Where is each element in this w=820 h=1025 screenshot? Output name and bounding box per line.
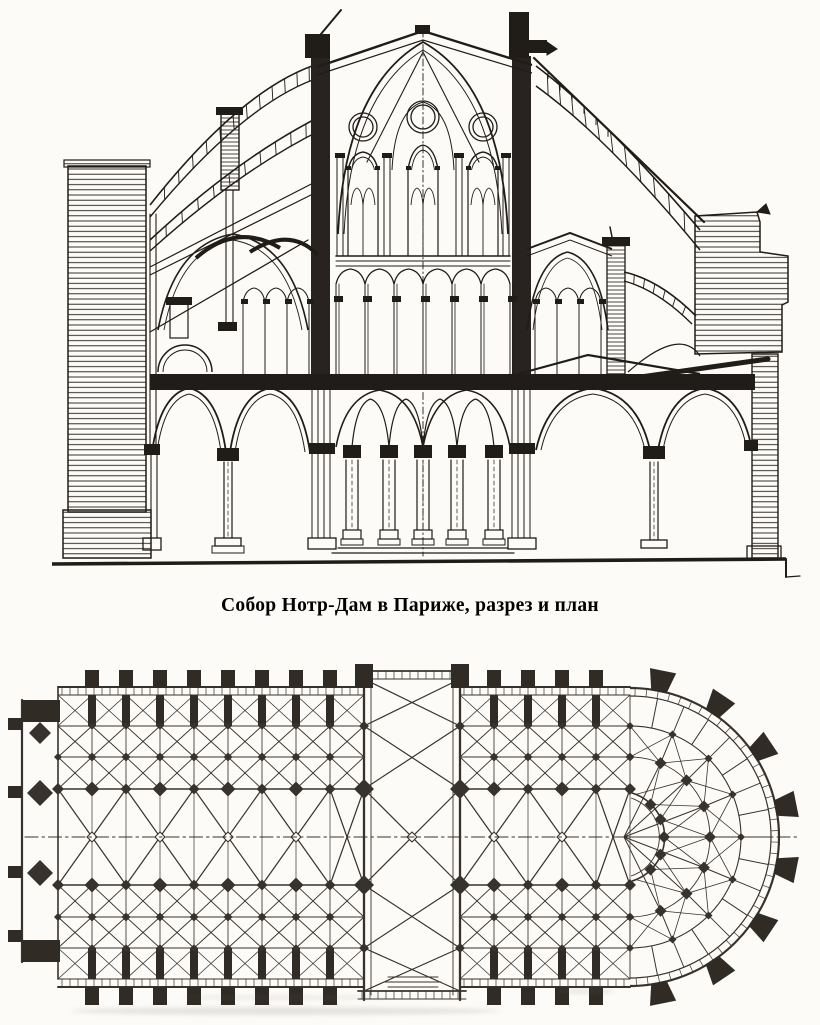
scanned-book-page: Собор Нотр-Дам в Париже, разрез и план [0,0,820,1025]
scan-smudge [180,995,390,1000]
cathedral-plan-drawing [8,664,800,1006]
figure-caption: Собор Нотр-Дам в Париже, разрез и план [0,595,820,617]
scan-smudge [70,1007,500,1015]
scan-smudge [555,988,615,994]
cathedral-section-drawing [52,10,800,577]
engraving-canvas [0,0,820,1025]
